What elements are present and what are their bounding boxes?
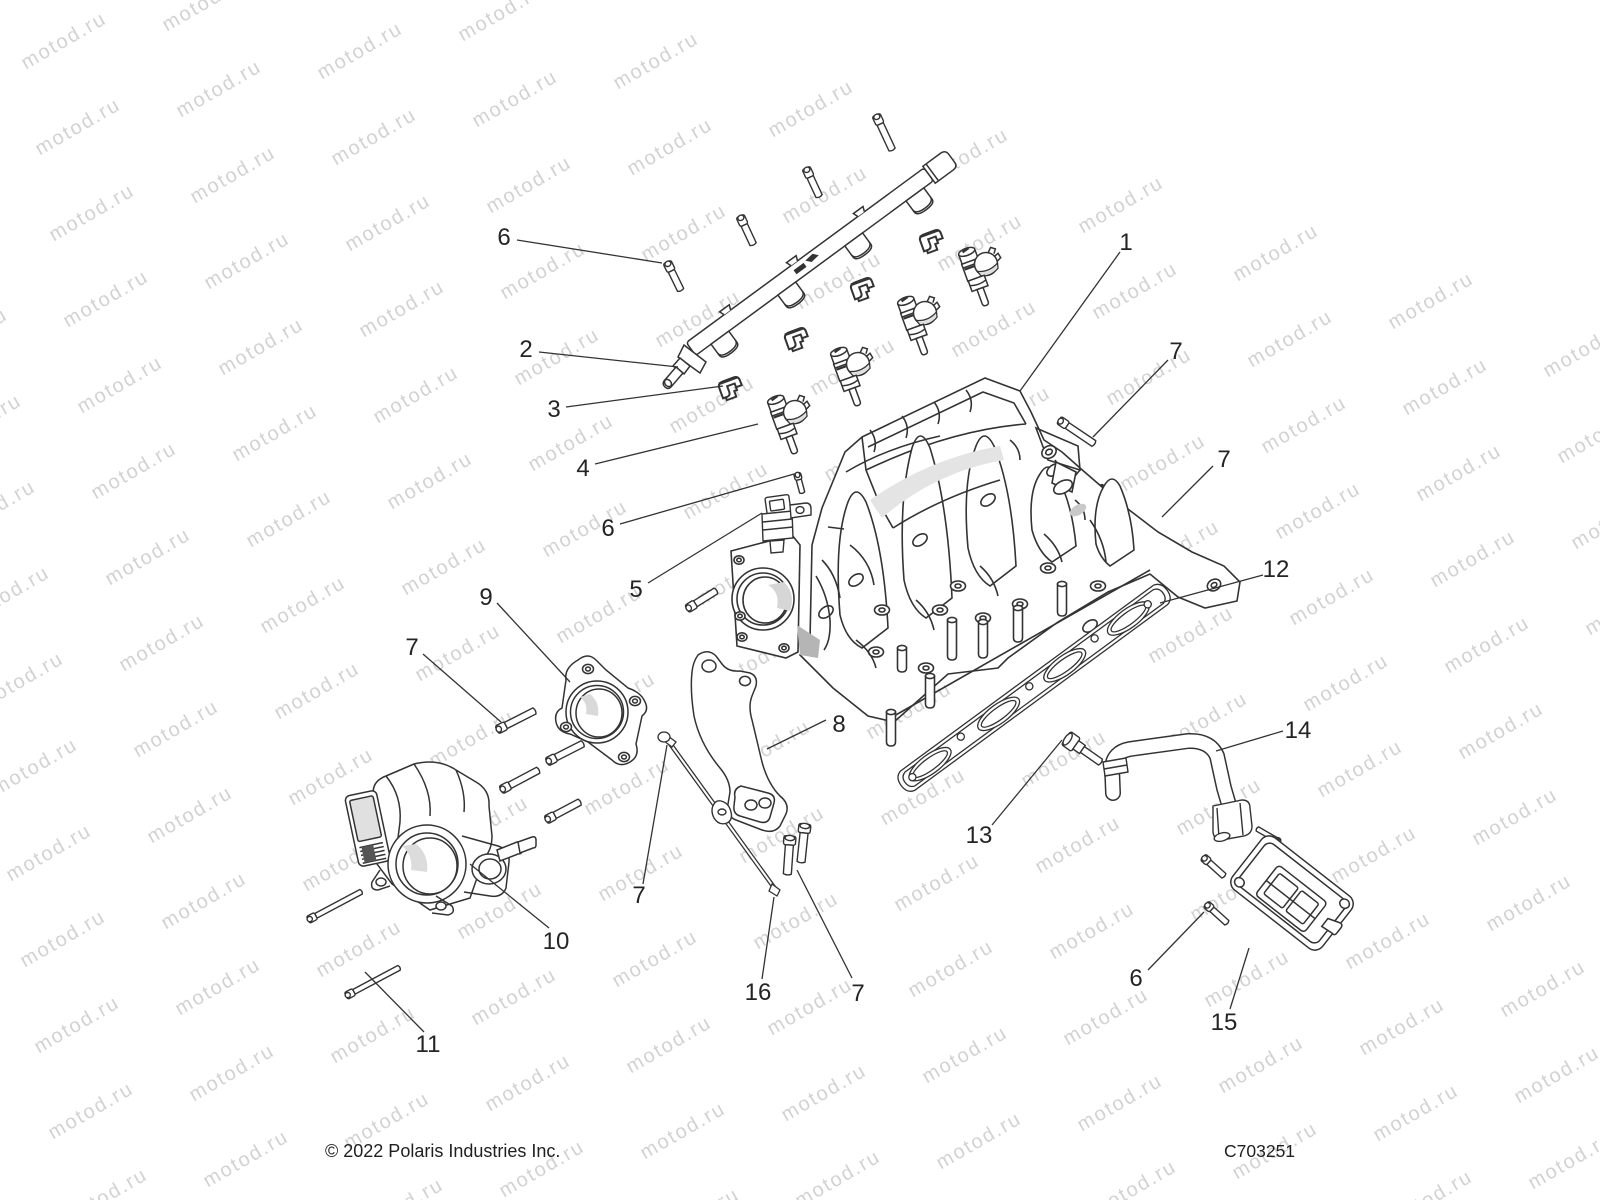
svg-text:2: 2 [519, 336, 532, 363]
svg-text:motod.ru: motod.ru [679, 458, 772, 525]
svg-text:13: 13 [966, 822, 993, 849]
svg-text:motod.ru: motod.ru [383, 448, 476, 515]
svg-text:motod.ru: motod.ru [482, 152, 575, 219]
svg-text:motod.ru: motod.ru [1369, 1080, 1462, 1147]
svg-text:6: 6 [1129, 965, 1142, 992]
svg-text:motod.ru: motod.ru [467, 964, 560, 1031]
svg-text:motod.ru: motod.ru [129, 696, 222, 763]
svg-text:motod.ru: motod.ru [1355, 994, 1448, 1061]
svg-text:motod.ru: motod.ru [1454, 698, 1547, 765]
svg-text:motod.ru: motod.ru [946, 1194, 1039, 1200]
svg-text:motod.ru: motod.ru [1214, 1032, 1307, 1099]
svg-text:motod.ru: motod.ru [87, 438, 180, 505]
svg-text:motod.ru: motod.ru [1341, 908, 1434, 975]
svg-text:motod.ru: motod.ru [524, 410, 617, 477]
svg-text:motod.ru: motod.ru [355, 276, 448, 343]
svg-text:motod.ru: motod.ru [1398, 354, 1491, 421]
svg-text:motod.ru: motod.ru [411, 620, 504, 687]
svg-text:motod.ru: motod.ru [44, 1078, 137, 1145]
svg-text:6: 6 [497, 224, 510, 251]
svg-text:motod.ru: motod.ru [1510, 1042, 1600, 1109]
svg-text:motod.ru: motod.ru [369, 362, 462, 429]
svg-text:motod.ru: motod.ru [45, 180, 138, 247]
svg-text:motod.ru: motod.ru [1567, 488, 1600, 555]
svg-text:15: 15 [1211, 1009, 1238, 1036]
svg-text:motod.ru: motod.ru [0, 390, 26, 457]
svg-text:3: 3 [547, 396, 560, 423]
svg-text:motod.ru: motod.ru [1468, 784, 1561, 851]
svg-text:motod.ru: motod.ru [31, 94, 124, 161]
svg-text:C703251: C703251 [1224, 1141, 1295, 1161]
svg-text:motod.ru: motod.ru [468, 66, 561, 133]
svg-text:motod.ru: motod.ru [622, 1012, 715, 1079]
svg-text:motod.ru: motod.ru [1383, 1166, 1476, 1200]
svg-text:motod.ru: motod.ru [1271, 478, 1364, 545]
svg-text:motod.ru: motod.ru [637, 200, 730, 267]
svg-text:motod.ru: motod.ru [199, 1126, 292, 1193]
svg-text:motod.ru: motod.ru [1116, 430, 1209, 497]
svg-text:motod.ru: motod.ru [636, 1098, 729, 1165]
svg-text:motod.ru: motod.ru [397, 534, 490, 601]
svg-text:motod.ru: motod.ru [200, 228, 293, 295]
svg-text:motod.ru: motod.ru [143, 782, 236, 849]
svg-text:motod.ru: motod.ru [1285, 564, 1378, 631]
svg-text:7: 7 [1217, 446, 1230, 473]
svg-text:motod.ru: motod.ru [1539, 316, 1600, 383]
svg-text:motod.ru: motod.ru [313, 18, 406, 85]
svg-text:motod.ru: motod.ru [0, 304, 12, 371]
svg-text:16: 16 [745, 979, 772, 1006]
svg-text:motod.ru: motod.ru [0, 562, 54, 629]
svg-text:© 2022 Polaris Industries Inc.: © 2022 Polaris Industries Inc. [325, 1141, 560, 1161]
svg-text:motod.ru: motod.ru [1595, 660, 1600, 727]
svg-text:motod.ru: motod.ru [1299, 650, 1392, 717]
svg-text:7: 7 [405, 634, 418, 661]
svg-text:motod.ru: motod.ru [0, 734, 82, 801]
svg-text:motod.ru: motod.ru [1031, 812, 1124, 879]
svg-text:10: 10 [543, 928, 570, 955]
svg-text:motod.ru: motod.ru [16, 906, 109, 973]
svg-text:motod.ru: motod.ru [1496, 956, 1589, 1023]
svg-text:motod.ru: motod.ru [186, 142, 279, 209]
svg-text:motod.ru: motod.ru [904, 936, 997, 1003]
svg-text:motod.ru: motod.ru [327, 104, 420, 171]
svg-text:motod.ru: motod.ru [1482, 870, 1575, 937]
svg-text:motod.ru: motod.ru [947, 296, 1040, 363]
svg-text:motod.ru: motod.ru [932, 1108, 1025, 1175]
svg-text:motod.ru: motod.ru [2, 820, 95, 887]
svg-text:motod.ru: motod.ru [1524, 1128, 1600, 1195]
svg-text:motod.ru: motod.ru [1059, 984, 1152, 1051]
svg-text:14: 14 [1285, 717, 1312, 744]
svg-text:11: 11 [416, 1031, 441, 1058]
svg-text:motod.ru: motod.ru [1313, 736, 1406, 803]
svg-text:motod.ru: motod.ru [665, 372, 758, 439]
svg-text:motod.ru: motod.ru [1553, 402, 1600, 469]
svg-text:motod.ru: motod.ru [58, 1164, 151, 1200]
svg-text:motod.ru: motod.ru [890, 850, 983, 917]
svg-text:1: 1 [1119, 229, 1132, 256]
svg-text:motod.ru: motod.ru [326, 1002, 419, 1069]
svg-text:motod.ru: motod.ru [1243, 306, 1336, 373]
svg-text:9: 9 [479, 584, 492, 611]
svg-text:motod.ru: motod.ru [1412, 440, 1505, 507]
svg-text:motod.ru: motod.ru [1327, 822, 1420, 889]
svg-text:motod.ru: motod.ru [1426, 526, 1519, 593]
svg-text:motod.ru: motod.ru [214, 314, 307, 381]
svg-text:motod.ru: motod.ru [1088, 258, 1181, 325]
svg-text:motod.ru: motod.ru [73, 352, 166, 419]
svg-text:motod.ru: motod.ru [1440, 612, 1533, 679]
svg-text:motod.ru: motod.ru [0, 648, 68, 715]
svg-text:motod.ru: motod.ru [256, 572, 349, 639]
svg-text:4: 4 [576, 455, 589, 482]
svg-text:motod.ru: motod.ru [1045, 898, 1138, 965]
svg-text:motod.ru: motod.ru [30, 992, 123, 1059]
svg-text:motod.ru: motod.ru [481, 1050, 574, 1117]
svg-text:motod.ru: motod.ru [171, 954, 264, 1021]
svg-text:motod.ru: motod.ru [749, 888, 842, 955]
svg-text:7: 7 [851, 980, 864, 1007]
svg-text:motod.ru: motod.ru [270, 658, 363, 725]
svg-text:motod.ru: motod.ru [1073, 1070, 1166, 1137]
svg-text:motod.ru: motod.ru [777, 1060, 870, 1127]
svg-text:motod.ru: motod.ru [425, 706, 518, 773]
svg-text:7: 7 [1169, 338, 1182, 365]
svg-text:motod.ru: motod.ru [1229, 220, 1322, 287]
svg-text:motod.ru: motod.ru [609, 28, 702, 95]
svg-text:motod.ru: motod.ru [791, 1146, 884, 1200]
svg-text:motod.ru: motod.ru [763, 974, 856, 1041]
svg-text:motod.ru: motod.ru [764, 76, 857, 143]
svg-text:motod.ru: motod.ru [59, 266, 152, 333]
svg-text:motod.ru: motod.ru [172, 56, 265, 123]
svg-text:motod.ru: motod.ru [538, 496, 631, 563]
svg-text:motod.ru: motod.ru [115, 610, 208, 677]
svg-text:motod.ru: motod.ru [157, 868, 250, 935]
svg-text:8: 8 [832, 711, 845, 738]
svg-text:motod.ru: motod.ru [242, 486, 335, 553]
svg-text:motod.ru: motod.ru [608, 926, 701, 993]
svg-text:motod.ru: motod.ru [228, 400, 321, 467]
svg-text:motod.ru: motod.ru [918, 1022, 1011, 1089]
svg-text:7: 7 [632, 882, 645, 909]
svg-text:6: 6 [601, 515, 614, 542]
svg-text:motod.ru: motod.ru [1087, 1156, 1180, 1200]
svg-text:motod.ru: motod.ru [0, 476, 40, 543]
svg-text:motod.ru: motod.ru [341, 190, 434, 257]
svg-text:motod.ru: motod.ru [1384, 268, 1477, 335]
svg-text:motod.ru: motod.ru [17, 8, 110, 75]
svg-text:motod.ru: motod.ru [1257, 392, 1350, 459]
svg-text:motod.ru: motod.ru [1581, 574, 1600, 641]
svg-text:motod.ru: motod.ru [185, 1040, 278, 1107]
svg-text:12: 12 [1263, 556, 1290, 583]
svg-text:5: 5 [629, 576, 642, 603]
svg-text:motod.ru: motod.ru [158, 0, 251, 36]
svg-text:motod.ru: motod.ru [623, 114, 716, 181]
svg-text:motod.ru: motod.ru [454, 0, 547, 46]
svg-text:motod.ru: motod.ru [354, 1174, 447, 1200]
svg-text:motod.ru: motod.ru [650, 1184, 743, 1200]
svg-text:motod.ru: motod.ru [101, 524, 194, 591]
